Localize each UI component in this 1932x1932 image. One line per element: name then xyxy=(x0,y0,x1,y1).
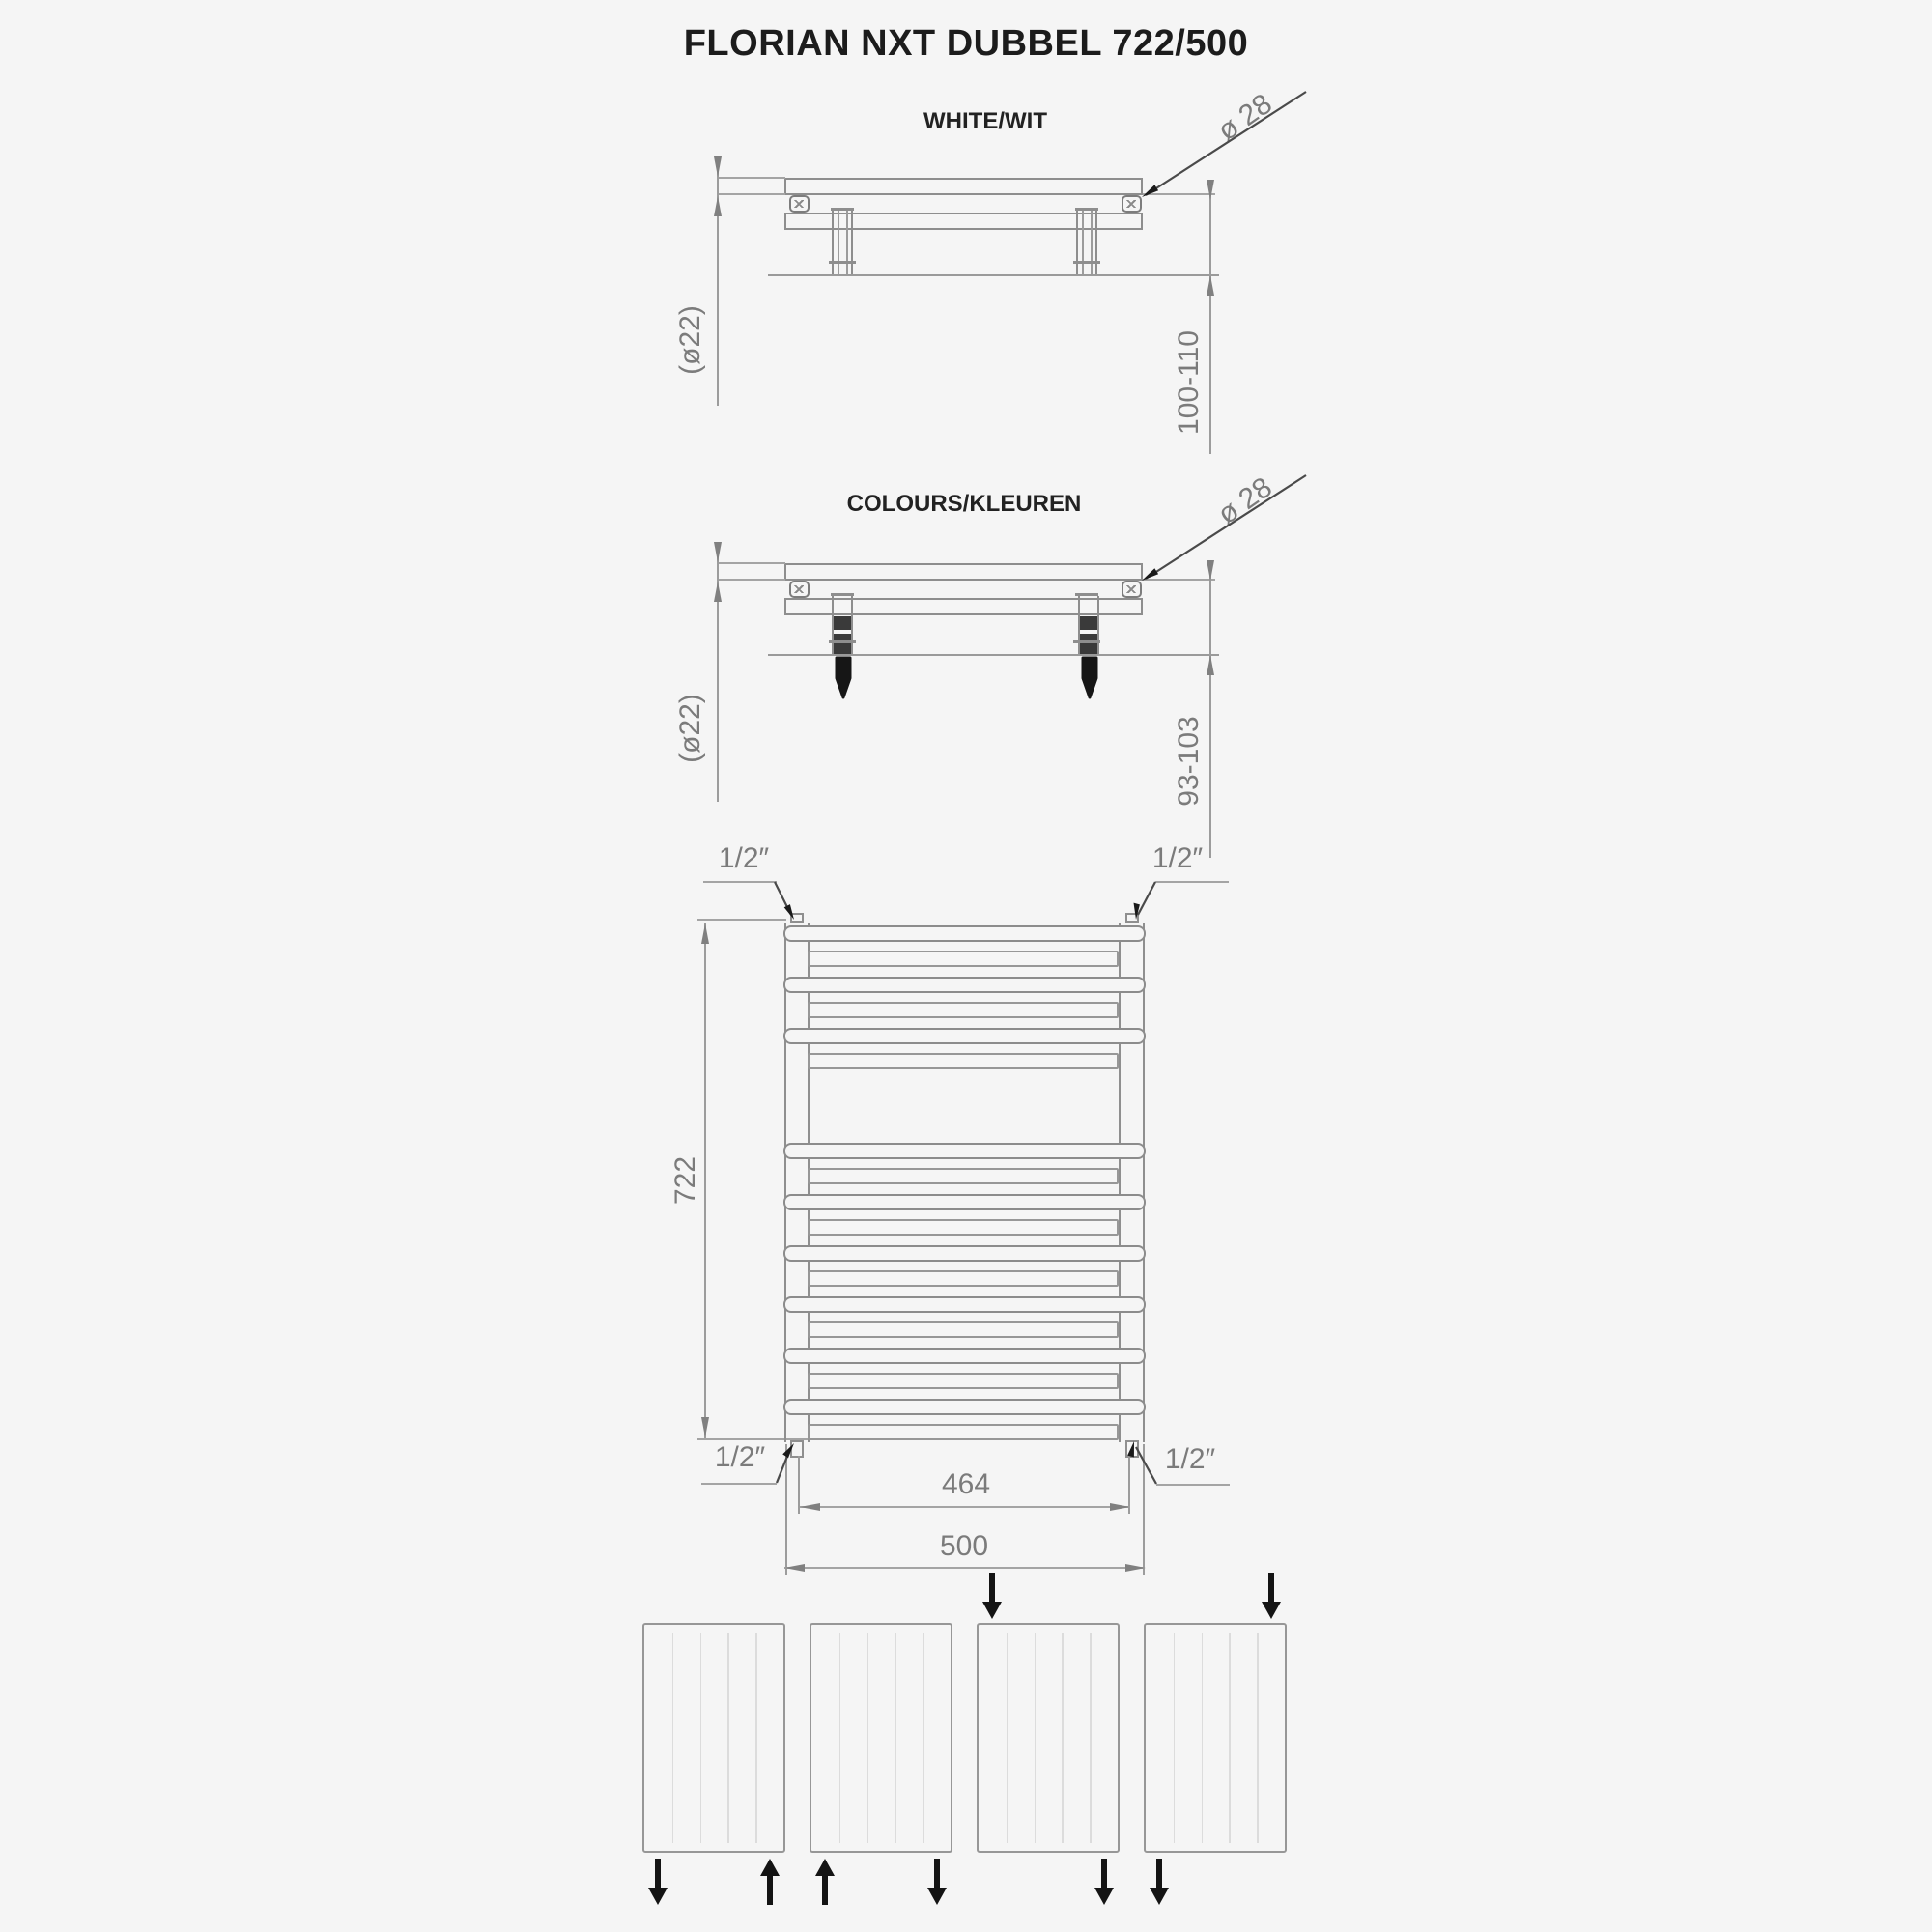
dim-arrow-icon xyxy=(714,542,722,562)
flow-arrow-up-icon xyxy=(815,1859,835,1905)
flow-arrow-down-icon xyxy=(1150,1859,1169,1905)
extension-line xyxy=(718,177,785,179)
dim-collector-diameter: ø 28 xyxy=(1183,68,1306,168)
front-tube xyxy=(783,1143,1146,1159)
leader-underline xyxy=(703,881,777,883)
bracket-line xyxy=(1097,596,1099,655)
flow-arrow-head xyxy=(927,1888,947,1905)
rear-tube xyxy=(808,1219,1119,1236)
front-tube xyxy=(783,1245,1146,1262)
clamp-icon xyxy=(789,581,810,598)
flow-arrow-down-icon xyxy=(648,1859,668,1905)
connection-stub xyxy=(1125,913,1139,923)
rear-tube xyxy=(808,1168,1119,1184)
front-tube xyxy=(783,1296,1146,1313)
dim-arrow-icon xyxy=(1207,560,1214,581)
scheme-tube-line xyxy=(1174,1633,1176,1843)
wall-anchor-icon xyxy=(837,658,1096,697)
extension-line xyxy=(1143,193,1215,195)
bracket-line xyxy=(1095,211,1097,275)
dim-arrow-icon xyxy=(1207,275,1214,296)
extension-line xyxy=(697,1438,815,1440)
page-title: FLORIAN NXT DUBBEL 722/500 xyxy=(0,23,1932,65)
leader-underline xyxy=(701,1483,777,1485)
scheme-tube-line xyxy=(1062,1633,1064,1843)
dimension-line xyxy=(800,1506,1130,1508)
clamp-icon xyxy=(1122,195,1142,213)
front-tube xyxy=(783,1348,1146,1364)
dimension-line xyxy=(717,156,719,406)
dim-connection-spacing: 464 xyxy=(908,1467,1024,1502)
clamp-icon xyxy=(1122,581,1142,598)
extension-line xyxy=(785,1444,787,1575)
bracket-foot xyxy=(1073,261,1100,264)
dim-arrow-icon xyxy=(714,582,722,602)
connection-stub xyxy=(790,913,804,923)
dim-wall-distance: 100-110 xyxy=(1172,325,1207,440)
dimension-line xyxy=(1209,184,1211,454)
dim-connection-bottom-left: 1/2″ xyxy=(694,1441,786,1474)
section-label-colours: COLOURS/KLEUREN xyxy=(819,491,1109,518)
flow-arrow-down-icon xyxy=(982,1573,1002,1619)
rear-tube xyxy=(808,1321,1119,1338)
anchor-block xyxy=(1080,616,1097,630)
scheme-tube-line xyxy=(1229,1633,1231,1843)
radiator-panel-profile xyxy=(784,178,1143,195)
extension-line xyxy=(697,919,786,921)
dim-arrow-icon xyxy=(701,923,709,944)
leader-underline xyxy=(1155,881,1229,883)
radiator-panel-profile xyxy=(784,563,1143,581)
scheme-tube-line xyxy=(727,1633,729,1843)
dim-height: 722 xyxy=(668,1122,703,1238)
dim-arrow-icon xyxy=(1207,180,1214,200)
extension-line xyxy=(718,579,785,581)
dim-arrow-icon xyxy=(784,1564,805,1572)
front-tube xyxy=(783,1399,1146,1415)
scheme-tube-line xyxy=(1202,1633,1204,1843)
rear-tube xyxy=(808,1424,1119,1440)
flow-arrow-head xyxy=(648,1888,668,1905)
flow-arrow-head xyxy=(1094,1888,1114,1905)
bracket-foot xyxy=(1073,640,1100,643)
dimension-line xyxy=(1209,564,1211,858)
dim-tube-diameter: (ø22) xyxy=(673,670,708,786)
flow-arrow-up-icon xyxy=(760,1859,780,1905)
flow-arrow-shaft xyxy=(767,1875,773,1905)
bracket-line xyxy=(851,211,853,275)
bracket-foot xyxy=(829,261,856,264)
extension-line xyxy=(1143,579,1215,581)
scheme-tube-line xyxy=(1035,1633,1037,1843)
extension-line xyxy=(718,193,785,195)
dim-arrow-icon xyxy=(714,196,722,216)
dim-connection-top-right: 1/2″ xyxy=(1131,842,1224,875)
dim-connection-bottom-right: 1/2″ xyxy=(1144,1443,1236,1476)
section-label-white: WHITE/WIT xyxy=(850,108,1121,135)
bracket-foot xyxy=(829,640,856,643)
dim-arrow-icon xyxy=(1125,1564,1146,1572)
flow-arrow-shaft xyxy=(822,1875,828,1905)
wall-line xyxy=(768,654,1219,656)
flow-arrow-shaft xyxy=(934,1859,940,1889)
technical-drawing-page: FLORIAN NXT DUBBEL 722/500 WHITE/WIT (ø2… xyxy=(0,0,1932,1932)
radiator-front-view xyxy=(784,923,1145,1442)
scheme-tube-line xyxy=(1007,1633,1009,1843)
flow-arrow-shaft xyxy=(1268,1573,1274,1603)
bracket-line xyxy=(832,211,834,275)
front-tube xyxy=(783,1194,1146,1210)
scheme-box xyxy=(977,1623,1120,1853)
front-tube xyxy=(783,977,1146,993)
dimension-line xyxy=(784,1567,1145,1569)
bracket-line xyxy=(846,211,848,275)
dim-arrow-icon xyxy=(714,156,722,177)
leader-underline xyxy=(1156,1484,1230,1486)
dim-arrow-icon xyxy=(701,1417,709,1437)
collector-rail xyxy=(784,923,786,1442)
scheme-tube-line xyxy=(867,1633,869,1843)
scheme-tube-line xyxy=(755,1633,757,1843)
dim-collector-diameter: ø 28 xyxy=(1183,451,1306,552)
flow-arrow-shaft xyxy=(655,1859,661,1889)
bracket-line xyxy=(851,596,853,655)
rear-tube xyxy=(808,1002,1119,1018)
clamp-icon xyxy=(789,195,810,213)
connection-stub xyxy=(790,1440,804,1458)
collector-rail xyxy=(1143,923,1145,1442)
rear-tube xyxy=(808,1373,1119,1389)
flow-arrow-head xyxy=(982,1602,1002,1619)
flow-arrow-shaft xyxy=(1156,1859,1162,1889)
wall-line xyxy=(768,274,1219,276)
dim-arrow-icon xyxy=(1110,1503,1130,1511)
collector-rail xyxy=(1119,923,1121,1442)
mounting-rail xyxy=(784,598,1143,615)
bracket-line xyxy=(1076,211,1078,275)
dim-connection-top-left: 1/2″ xyxy=(697,842,790,875)
flow-arrow-head xyxy=(760,1859,780,1876)
dim-wall-distance: 93-103 xyxy=(1172,703,1207,819)
rear-tube xyxy=(808,1270,1119,1287)
scheme-box xyxy=(810,1623,952,1853)
scheme-tube-line xyxy=(672,1633,674,1843)
rear-tube xyxy=(808,951,1119,967)
bracket-line xyxy=(1082,211,1084,275)
dimension-line xyxy=(704,923,706,1438)
flow-arrow-down-icon xyxy=(1094,1859,1114,1905)
scheme-box xyxy=(1144,1623,1287,1853)
dim-arrow-icon xyxy=(800,1503,820,1511)
anchor-block xyxy=(834,616,851,630)
extension-line xyxy=(1143,1444,1145,1575)
scheme-tube-line xyxy=(1257,1633,1259,1843)
bracket-line xyxy=(838,211,839,275)
front-tube xyxy=(783,1028,1146,1044)
flow-arrow-head xyxy=(815,1859,835,1876)
extension-line xyxy=(718,562,785,564)
dim-width: 500 xyxy=(906,1529,1022,1564)
flow-arrow-head xyxy=(1150,1888,1169,1905)
scheme-tube-line xyxy=(923,1633,924,1843)
scheme-tube-line xyxy=(839,1633,841,1843)
scheme-box xyxy=(642,1623,785,1853)
bracket-line xyxy=(1091,211,1093,275)
flow-arrow-head xyxy=(1262,1602,1281,1619)
scheme-tube-line xyxy=(895,1633,896,1843)
anchor-block xyxy=(834,634,851,654)
anchor-block xyxy=(1080,634,1097,654)
dim-tube-diameter: (ø22) xyxy=(673,282,708,398)
scheme-tube-line xyxy=(700,1633,702,1843)
flow-arrow-down-icon xyxy=(927,1859,947,1905)
flow-arrow-down-icon xyxy=(1262,1573,1281,1619)
flow-arrow-shaft xyxy=(1101,1859,1107,1889)
scheme-tube-line xyxy=(1090,1633,1092,1843)
flow-arrow-shaft xyxy=(989,1573,995,1603)
front-tube xyxy=(783,925,1146,942)
rear-tube xyxy=(808,1053,1119,1069)
dim-arrow-icon xyxy=(1207,655,1214,675)
